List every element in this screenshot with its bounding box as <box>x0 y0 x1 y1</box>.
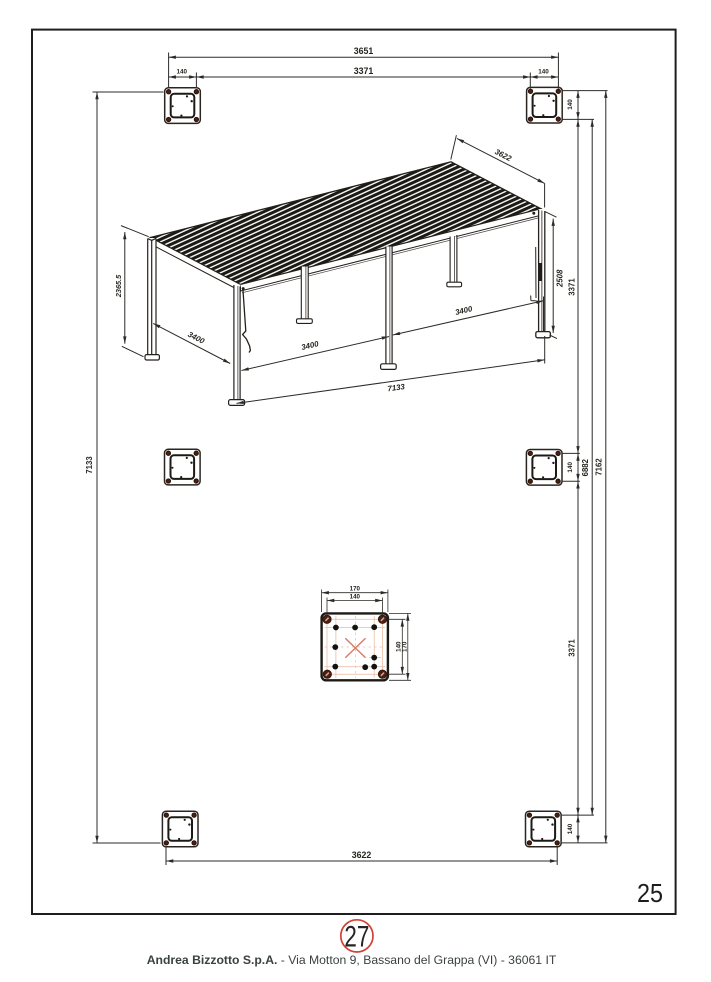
svg-text:3371: 3371 <box>354 66 374 76</box>
svg-text:3651: 3651 <box>354 46 374 56</box>
svg-text:6882: 6882 <box>581 458 590 476</box>
svg-text:7162: 7162 <box>595 458 604 476</box>
svg-text:25: 25 <box>637 878 663 908</box>
svg-text:170: 170 <box>350 586 361 593</box>
svg-text:170: 170 <box>401 641 408 652</box>
svg-text:7133: 7133 <box>85 456 94 474</box>
svg-text:140: 140 <box>177 68 188 75</box>
svg-text:140: 140 <box>538 68 549 75</box>
svg-text:140: 140 <box>567 99 574 110</box>
svg-text:3371: 3371 <box>568 639 577 657</box>
svg-text:3371: 3371 <box>568 278 577 296</box>
svg-text:2365.5: 2365.5 <box>114 274 123 298</box>
svg-text:140: 140 <box>567 462 574 473</box>
svg-text:Andrea Bizzotto S.p.A. - Via M: Andrea Bizzotto S.p.A. - Via Motton 9, B… <box>147 953 557 967</box>
svg-text:2508: 2508 <box>556 269 565 288</box>
svg-text:3622: 3622 <box>352 850 372 860</box>
svg-text:140: 140 <box>350 594 361 601</box>
svg-text:140: 140 <box>567 823 574 834</box>
svg-text:27: 27 <box>344 921 369 954</box>
